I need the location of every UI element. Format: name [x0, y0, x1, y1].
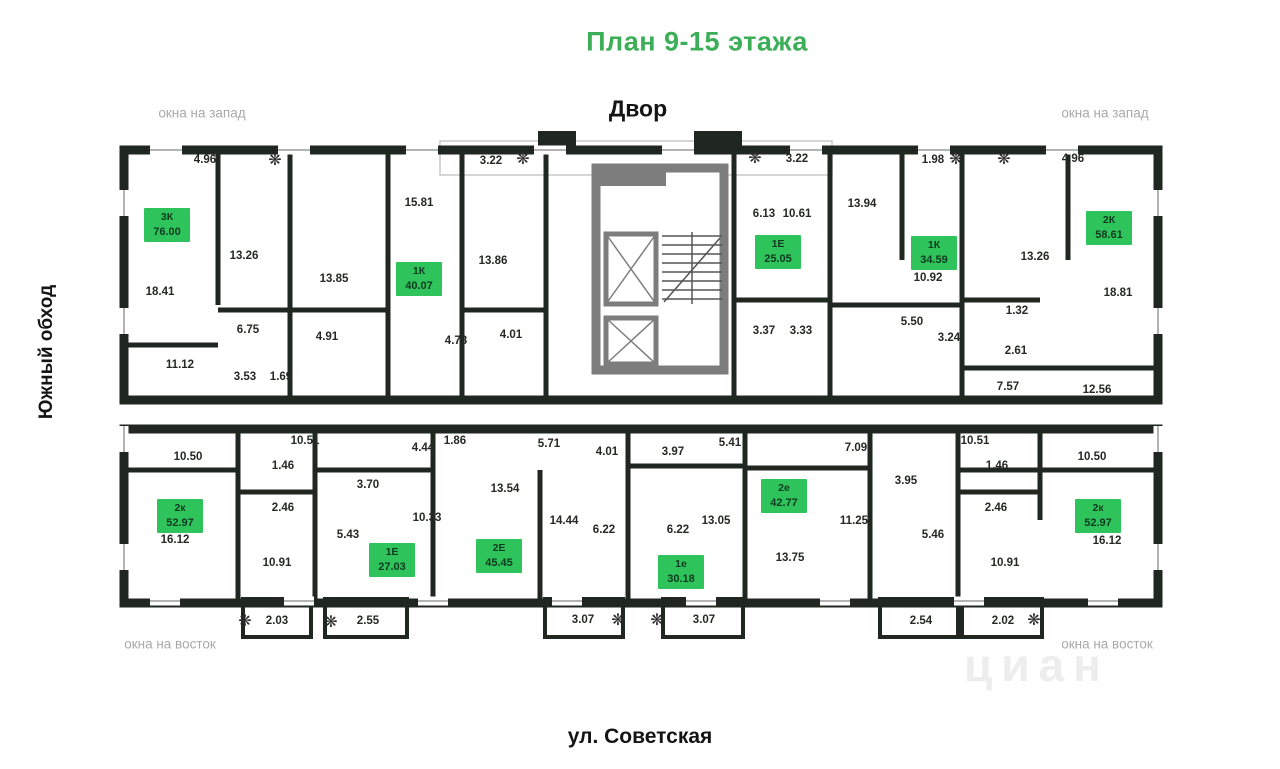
room-area-label: 4.44: [412, 442, 434, 454]
room-area-label: 4.01: [596, 446, 618, 458]
room-area-label: 10.51: [961, 435, 990, 447]
apartment-area: 58.61: [1092, 228, 1126, 242]
room-area-label: 3.22: [786, 153, 808, 165]
apartment-badge[interactable]: 2Е 45.45: [476, 539, 522, 573]
room-area-label: 13.94: [848, 198, 877, 210]
window-orientation-label: окна на запад: [1061, 106, 1148, 121]
room-area-label: 3.07: [572, 614, 594, 626]
room-area-label: 18.41: [146, 286, 175, 298]
room-area-label: 4.01: [500, 329, 522, 341]
room-area-label: 5.41: [719, 437, 741, 449]
room-area-label: 13.54: [491, 483, 520, 495]
room-area-label: 15.81: [405, 197, 434, 209]
room-area-label: 2.03: [266, 615, 288, 627]
apartment-type: 2к: [1081, 502, 1115, 516]
room-area-label: 10.33: [413, 512, 442, 524]
apartment-type: 1К: [917, 239, 951, 253]
room-area-label: 3.37: [753, 325, 775, 337]
room-area-label: 2.02: [992, 615, 1014, 627]
apartment-type: 2Е: [482, 542, 516, 556]
room-area-label: 6.75: [237, 324, 259, 336]
room-area-label: 4.91: [316, 331, 338, 343]
room-area-label: 13.75: [776, 552, 805, 564]
room-area-label: 6.22: [667, 524, 689, 536]
apartment-badge[interactable]: 1е 30.18: [658, 555, 704, 589]
room-area-label: 11.12: [166, 359, 194, 371]
apartment-type: 3К: [150, 211, 184, 225]
snowflake-icon: ❋: [516, 149, 529, 169]
room-area-label: 10.61: [783, 208, 812, 220]
room-area-label: 2.54: [910, 615, 932, 627]
room-area-label: 13.05: [702, 515, 731, 527]
room-area-label: 1.46: [986, 460, 1008, 472]
room-area-label: 3.22: [480, 155, 502, 167]
apartment-badge[interactable]: 1К 40.07: [396, 262, 442, 296]
room-area-label: 3.53: [234, 371, 256, 383]
apartment-area: 40.07: [402, 279, 436, 293]
room-area-label: 3.70: [357, 479, 379, 491]
room-area-label: 14.44: [550, 515, 579, 527]
room-area-label: 3.95: [895, 475, 917, 487]
apartment-type: 1К: [402, 265, 436, 279]
room-area-label: 10.92: [914, 272, 943, 284]
apartment-area: 52.97: [163, 516, 197, 530]
snowflake-icon: ❋: [997, 149, 1010, 169]
room-area-label: 3.07: [693, 614, 715, 626]
room-area-label: 5.43: [337, 529, 359, 541]
room-area-label: 3.24: [938, 332, 960, 344]
side-road-label: Южный обход: [36, 285, 58, 419]
window-orientation-label: окна на восток: [124, 637, 216, 652]
room-area-label: 5.46: [922, 529, 944, 541]
snowflake-icon: ❋: [650, 610, 663, 630]
room-area-label: 1.98: [922, 154, 944, 166]
apartment-area: 30.18: [664, 572, 698, 586]
window-orientation-label: окна на запад: [158, 106, 245, 121]
room-area-label: 13.85: [320, 273, 349, 285]
apartment-badge[interactable]: 3К 76.00: [144, 208, 190, 242]
room-area-label: 7.09: [845, 442, 867, 454]
room-area-label: 4.96: [194, 154, 216, 166]
room-area-label: 10.50: [1078, 451, 1107, 463]
window-orientation-label: окна на восток: [1061, 637, 1153, 652]
snowflake-icon: ❋: [748, 148, 761, 168]
apartment-area: 76.00: [150, 225, 184, 239]
snowflake-icon: ❋: [1027, 610, 1040, 630]
room-area-label: 13.26: [230, 250, 259, 262]
room-area-label: 5.71: [538, 438, 560, 450]
room-area-label: 10.91: [991, 557, 1020, 569]
core-block: [592, 164, 724, 370]
apartment-area: 25.05: [761, 252, 795, 266]
page-title: План 9-15 этажа: [586, 27, 808, 58]
apartment-badge[interactable]: 1Е 25.05: [755, 235, 801, 269]
room-area-label: 1.32: [1006, 305, 1028, 317]
apartment-type: 1е: [664, 558, 698, 572]
room-area-label: 16.12: [1093, 535, 1122, 547]
apartment-area: 42.77: [767, 496, 801, 510]
room-area-label: 1.69: [270, 371, 292, 383]
snowflake-icon: ❋: [611, 610, 624, 630]
room-area-label: 1.86: [444, 435, 466, 447]
room-area-label: 6.22: [593, 524, 615, 536]
room-area-label: 5.50: [901, 316, 923, 328]
room-area-label: 2.55: [357, 615, 379, 627]
room-area-label: 16.12: [161, 534, 190, 546]
room-area-label: 2.46: [985, 502, 1007, 514]
apartment-badge[interactable]: 2К 58.61: [1086, 211, 1132, 245]
apartment-area: 45.45: [482, 556, 516, 570]
courtyard-label: Двор: [609, 96, 667, 123]
apartment-area: 34.59: [917, 253, 951, 267]
room-area-label: 12.56: [1083, 384, 1112, 396]
apartment-badge[interactable]: 2е 42.77: [761, 479, 807, 513]
apartment-area: 52.97: [1081, 516, 1115, 530]
apartment-badge[interactable]: 1К 34.59: [911, 236, 957, 270]
room-area-label: 13.26: [1021, 251, 1050, 263]
apartment-type: 2К: [1092, 214, 1126, 228]
apartment-badge[interactable]: 2к 52.97: [157, 499, 203, 533]
floor-plan-page: План 9-15 этажа Двор ул. Советская Южный…: [0, 0, 1280, 769]
apartment-type: 2к: [163, 502, 197, 516]
room-area-label: 10.91: [263, 557, 292, 569]
room-area-label: 1.46: [272, 460, 294, 472]
room-area-label: 2.46: [272, 502, 294, 514]
room-area-label: 3.33: [790, 325, 812, 337]
street-label: ул. Советская: [568, 725, 713, 749]
apartment-type: 1Е: [375, 546, 409, 560]
apartment-type: 2е: [767, 482, 801, 496]
snowflake-icon: ❋: [238, 611, 251, 631]
room-area-label: 4.78: [445, 335, 467, 347]
apartment-area: 27.03: [375, 560, 409, 574]
room-area-label: 10.51: [291, 435, 320, 447]
room-area-label: 10.50: [174, 451, 203, 463]
room-area-label: 18.81: [1104, 287, 1133, 299]
apartment-badge[interactable]: 1Е 27.03: [369, 543, 415, 577]
room-area-label: 7.57: [997, 381, 1019, 393]
snowflake-icon: ❋: [268, 150, 281, 170]
room-area-label: 2.61: [1005, 345, 1027, 357]
apartment-type: 1Е: [761, 238, 795, 252]
room-area-label: 11.25: [840, 515, 868, 527]
snowflake-icon: ❋: [949, 149, 962, 169]
room-area-label: 13.86: [479, 255, 508, 267]
room-area-label: 6.13: [753, 208, 775, 220]
snowflake-icon: ❋: [324, 612, 337, 632]
room-area-label: 3.97: [662, 446, 684, 458]
apartment-badge[interactable]: 2к 52.97: [1075, 499, 1121, 533]
room-area-label: 4.96: [1062, 153, 1084, 165]
